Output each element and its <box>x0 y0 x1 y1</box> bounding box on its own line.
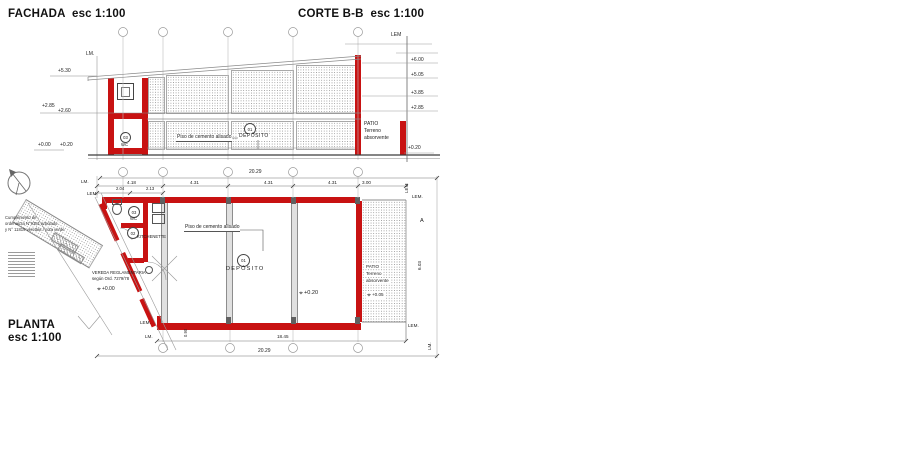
lm-label: LM. <box>145 334 153 339</box>
room-name: WC <box>121 143 128 148</box>
level-label: +5.30 <box>58 69 71 75</box>
room-name: DEPÓSITO <box>226 266 264 272</box>
lem-label: LEM. <box>412 194 423 199</box>
level-label: +2.60 <box>58 109 71 115</box>
dim-ticks <box>95 176 439 358</box>
level-mark: +0.20 <box>299 290 318 298</box>
planta-title-scale: esc 1:100 <box>8 332 62 344</box>
dim-label: 2.04 <box>116 187 124 192</box>
grid-lines <box>123 37 358 342</box>
floor-finish-label: Piso de cemento alisado <box>176 135 232 142</box>
level-label: +2.85 <box>411 106 424 112</box>
level-label: +0.00 <box>38 143 51 149</box>
corte-lines <box>345 36 438 162</box>
dim-label: 4.31 <box>264 180 273 185</box>
drawing-sheet: FACHADA esc 1:100 CORTE B-B esc 1:100 PL… <box>0 0 921 450</box>
level-mark: +0.00 <box>97 286 115 294</box>
patio-label: Terreno <box>365 271 383 276</box>
dim-label: 4.31 <box>190 180 199 185</box>
level-label: +3.85 <box>411 91 424 97</box>
dim-label: 4.31 <box>328 180 337 185</box>
dim-label: 2.13 <box>146 187 154 192</box>
linework <box>0 0 921 450</box>
patio-label: Terreno <box>364 129 381 135</box>
corte-title: CORTE B-B esc 1:100 <box>298 8 424 20</box>
dim-label: 20.29 <box>258 349 271 355</box>
patio-label: absorvente <box>364 136 389 142</box>
patio-label: PATIO <box>364 122 378 128</box>
patio-label: PATIO <box>365 264 380 269</box>
level-mark: +0.05 <box>366 292 385 300</box>
lem-label: LEM. <box>408 323 419 328</box>
plan-dim-lines <box>97 176 437 358</box>
room-name: KITCHENETTE <box>137 235 166 240</box>
lem-label: LEM. <box>87 191 98 196</box>
dim-label: 0.90 <box>184 325 189 337</box>
lm-label: LM. <box>86 52 94 58</box>
dim-label: 4.18 <box>127 180 136 185</box>
dim-label: 18.45 <box>277 334 289 339</box>
facade-lines <box>34 56 440 160</box>
patio-label: absorvente <box>365 278 390 283</box>
room-name: DEPÓSITO <box>238 134 270 140</box>
lm-label: LM. <box>427 336 432 350</box>
fachada-title: FACHADA esc 1:100 <box>8 8 126 20</box>
plan-outline-lines <box>28 193 406 350</box>
note-line: y N° 11819 veredas / cota verde <box>5 228 65 233</box>
vereda-label: según Ord. 7279/78 <box>92 277 129 282</box>
level-label: +6.00 <box>411 58 424 64</box>
level-label: +0.20 <box>60 143 73 149</box>
lm-label: LM. <box>81 179 89 184</box>
lem-label: LEM. <box>140 320 151 325</box>
north-arrow-icon <box>8 169 30 195</box>
lem-label: LEM <box>391 33 401 39</box>
planta-title: PLANTA <box>8 319 55 331</box>
dim-label: 3.00 <box>362 180 371 185</box>
level-label: +0.20 <box>408 146 421 152</box>
room-name: WC <box>130 217 137 222</box>
grid-bubbles <box>119 28 363 353</box>
section-marker: A <box>420 218 424 224</box>
dim-label: 20.29 <box>249 170 262 176</box>
floor-finish-label: Piso de cemento alisado <box>184 225 240 232</box>
dim-label: 6.03 <box>417 254 422 270</box>
level-label: +5.05 <box>411 73 424 79</box>
lem-label: LEM <box>404 179 409 193</box>
level-label: +2.85 <box>42 104 55 110</box>
